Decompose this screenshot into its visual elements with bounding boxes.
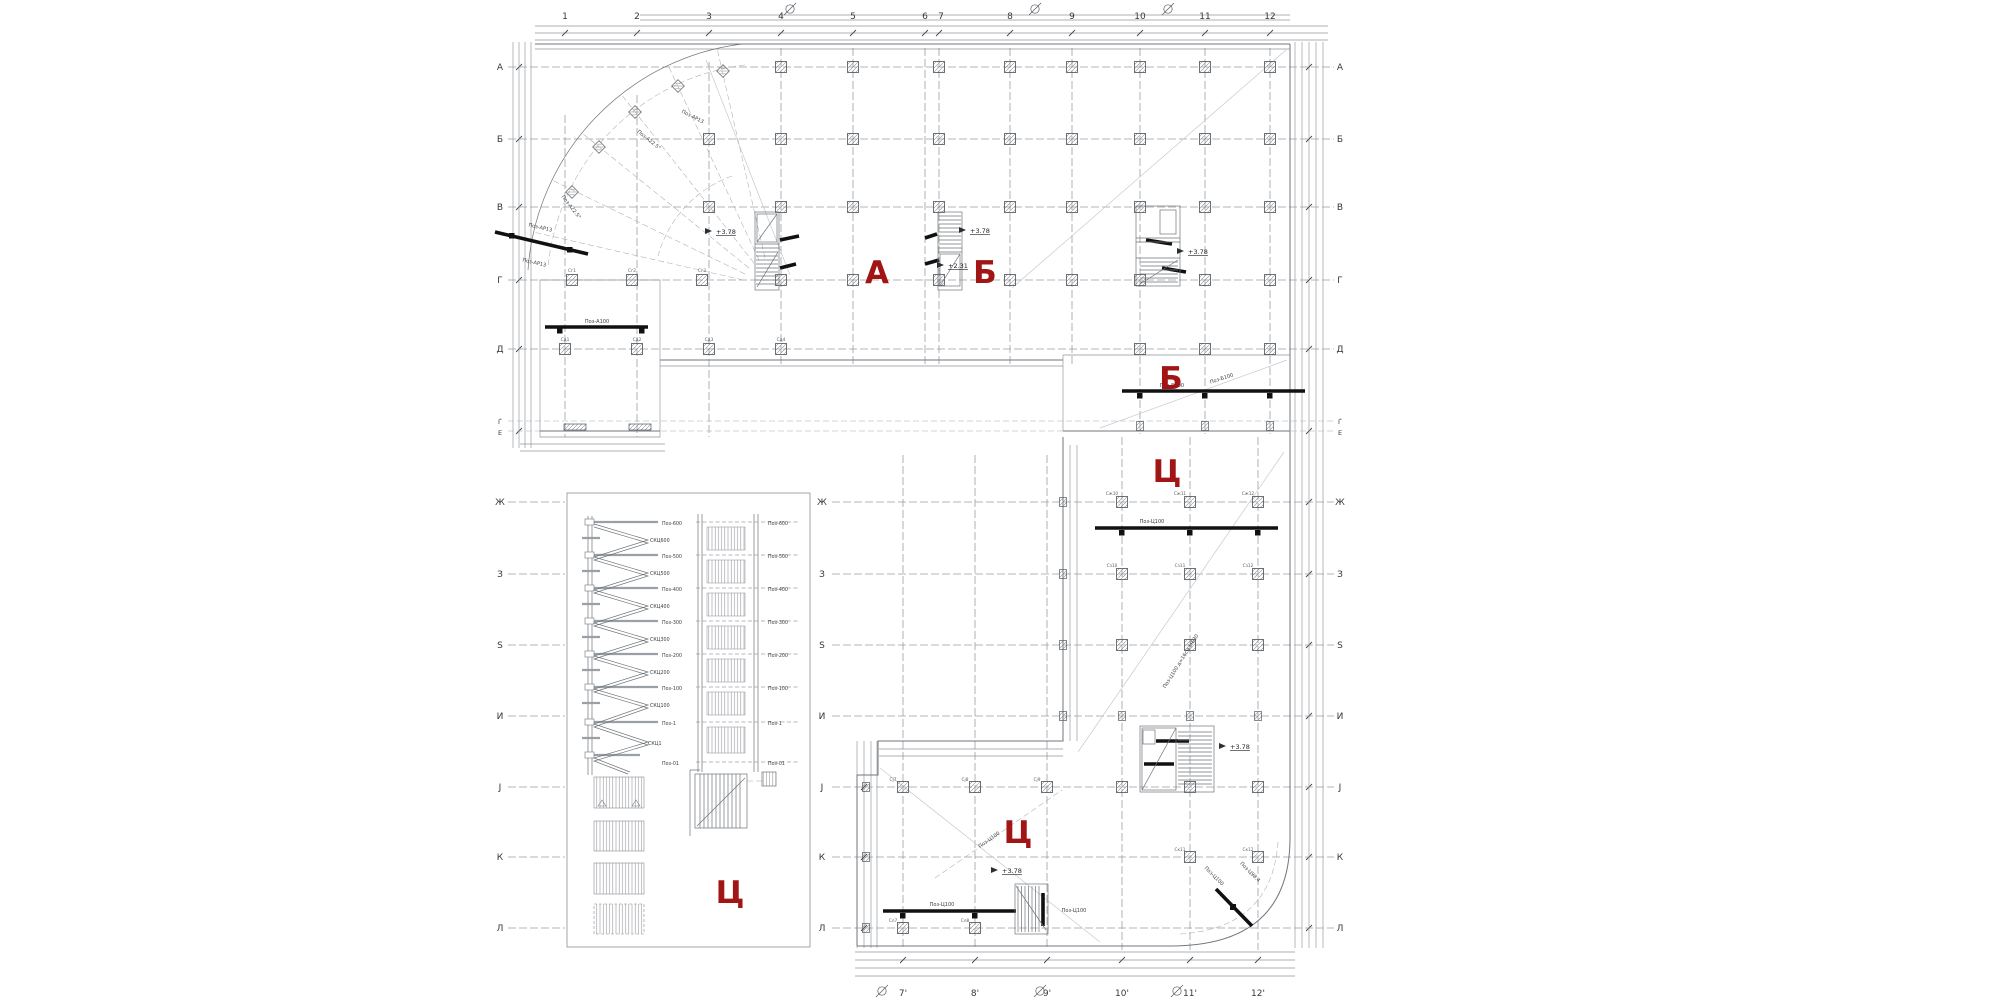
- axis-col-label: 1: [562, 12, 568, 22]
- flight-label: Поз-400: [768, 587, 788, 593]
- section-letter-c1: Ц: [1153, 454, 1182, 490]
- column-tag: Сј7: [890, 777, 897, 783]
- axis-col-label: 10: [1134, 12, 1146, 22]
- axis-row-label: И: [1337, 712, 1344, 722]
- flight-label: Поз-1: [768, 721, 782, 727]
- axis-row-label: И: [819, 712, 826, 722]
- axis-row-label: Д: [1336, 345, 1343, 355]
- column-tag: Ск12: [1242, 847, 1253, 853]
- column-tag: Сз12: [1243, 563, 1254, 569]
- elevation-label: +3.78: [970, 227, 990, 235]
- beam-label: Поз-Ц100: [978, 831, 1002, 850]
- landing-label: СКЦ200: [650, 670, 670, 676]
- flight-label: Поз-600: [662, 521, 682, 527]
- column-tag: Сд2: [633, 337, 642, 343]
- flight-label: Поз-300: [768, 620, 788, 626]
- beam-label: Поз-А22.5°: [560, 194, 582, 220]
- axis-row-label: Ѕ: [497, 641, 503, 651]
- column-tag: Сз11: [1175, 563, 1186, 569]
- axis-row-label: К: [819, 853, 826, 863]
- column-tag: Ск11: [1174, 847, 1185, 853]
- axis-col-label: 8': [971, 989, 979, 999]
- elevation-label: +3.78: [716, 228, 736, 236]
- section-letter-b: Б: [973, 255, 997, 291]
- axis-col-label: 9: [1069, 12, 1075, 22]
- elevation-label: +3.78: [1002, 867, 1022, 875]
- axis-row-label: И: [497, 712, 504, 722]
- axis-col-label: 3: [706, 12, 712, 22]
- axis-row-label: Г: [1337, 276, 1343, 286]
- axis-row-label: К: [1337, 853, 1344, 863]
- axis-row-label: В: [497, 203, 503, 213]
- flight-label: Поз-600: [768, 521, 788, 527]
- axis-row-label: Б: [497, 135, 503, 145]
- column-tag: Сд1: [561, 337, 570, 343]
- column-tag: Сд4: [777, 337, 786, 343]
- column-tag: Сж11: [1174, 491, 1187, 497]
- axis-row-label: Ж: [1335, 498, 1345, 508]
- landing-label: СКЦ100: [650, 703, 670, 709]
- axis-row-label: А: [497, 63, 504, 73]
- beam-label: Поз-АР13: [522, 257, 547, 268]
- axis-row-label: Ѓ: [498, 417, 502, 426]
- landing-label: СКЦ600: [650, 538, 670, 544]
- stair-core-5: [1140, 726, 1214, 792]
- axis-row-label: Е: [1338, 429, 1342, 437]
- axis-row-label: Е: [498, 429, 502, 437]
- column-tag: Сл7: [889, 918, 898, 924]
- flight-label: Поз-01: [662, 761, 679, 767]
- column-tag: Сг3: [698, 268, 706, 274]
- column-tag: Сг1: [568, 268, 576, 274]
- axis-col-label: 10': [1115, 989, 1129, 999]
- section-letter-c3: Ц: [716, 875, 745, 911]
- axis-row-label: Г: [497, 276, 503, 286]
- flight-label: Поз-500: [662, 554, 682, 560]
- floor-plan-drawing: 1 2 3 4 5 6 7 8 9 10 11 12 7' 8' 9' 10' …: [0, 0, 2000, 1000]
- axis-col-label: 11': [1183, 989, 1197, 999]
- section-letter-c2: Ц: [1004, 815, 1033, 851]
- beam-label: Поз-А100: [585, 319, 609, 325]
- axis-row-label: Ј: [1338, 783, 1342, 793]
- flight-label: Поз-200: [768, 653, 788, 659]
- axis-col-label: 8: [1007, 12, 1013, 22]
- axis-row-label: Ј: [820, 783, 824, 793]
- axis-row-label: К: [497, 853, 504, 863]
- axis-col-label: 2: [634, 12, 640, 22]
- column-tag: Сз10: [1107, 563, 1118, 569]
- elevation-label: +3.78: [1188, 248, 1208, 256]
- landing-label: СКЦ300: [650, 637, 670, 643]
- beam-label: Поз-Ц100: [1140, 519, 1165, 525]
- axis-col-label: 7: [938, 12, 944, 22]
- beam-label: Поз-Ц100: [1062, 908, 1087, 914]
- column-tag: Сј8: [962, 777, 969, 783]
- beam-label: Поз-АР13: [528, 222, 553, 233]
- landing-label: СКЦ500: [650, 571, 670, 577]
- flight-label: Поз-200: [662, 653, 682, 659]
- column-tag: Сј9: [1034, 777, 1041, 783]
- axis-row-label: Ѕ: [1337, 641, 1343, 651]
- axis-col-label: 11: [1199, 12, 1210, 22]
- axis-row-label: Д: [496, 345, 503, 355]
- flight-label: Поз-100: [662, 686, 682, 692]
- column-tag: Сл8: [961, 918, 970, 924]
- axis-col-label: 12': [1251, 989, 1265, 999]
- landing-label: СКЦ400: [650, 604, 670, 610]
- axis-row-label: З: [497, 570, 503, 580]
- column-tag: Сж12: [1242, 491, 1255, 497]
- axis-row-label: Ѓ: [1338, 417, 1342, 426]
- section-letter-a: А: [865, 255, 889, 291]
- axis-col-label: 4: [778, 12, 784, 22]
- beam-label: Поз-Ц100: [1203, 865, 1225, 887]
- elevation-label: +3.78: [1230, 743, 1250, 751]
- slab-note-label: Поз-Ц100 д=16см МБ30: [1162, 633, 1200, 689]
- axis-row-label: Ј: [498, 783, 502, 793]
- landing-label: СКЦ1: [648, 741, 662, 747]
- axis-row-label: Ж: [495, 498, 505, 508]
- flight-label: Поз-01: [768, 761, 785, 767]
- stair-detail-block: [567, 493, 810, 947]
- elevation-label: +2.31: [948, 262, 968, 270]
- drawing-page: 1 2 3 4 5 6 7 8 9 10 11 12 7' 8' 9' 10' …: [0, 0, 2000, 1000]
- axis-col-label: 7': [899, 989, 907, 999]
- flight-label: Поз-1: [662, 721, 676, 727]
- beam-label: Поз-А22.5°: [636, 129, 662, 152]
- axis-row-label: З: [1337, 570, 1343, 580]
- flight-label: Поз-300: [662, 620, 682, 626]
- stair-core-3: [1136, 206, 1180, 286]
- axis-row-label: З: [819, 570, 825, 580]
- axis-row-label: А: [1337, 63, 1344, 73]
- axis-row-label: Ѕ: [819, 641, 825, 651]
- axis-col-label: 6: [922, 12, 928, 22]
- axis-row-label: Ж: [817, 498, 827, 508]
- axis-col-label: 12: [1264, 12, 1275, 22]
- fan-structure: [528, 44, 765, 280]
- flight-label: Поз-100: [768, 686, 788, 692]
- section-letter-b2: Б: [1159, 361, 1183, 397]
- axis-col-label: 5: [850, 12, 856, 22]
- axis-row-label: Л: [497, 924, 504, 934]
- axis-row-label: Л: [819, 924, 826, 934]
- axis-row-label: Б: [1337, 135, 1343, 145]
- column-tag: Сд3: [705, 337, 714, 343]
- beam-label: Поз-Ц100: [930, 902, 955, 908]
- axis-row-label: Л: [1337, 924, 1344, 934]
- column-tag: Сж10: [1106, 491, 1119, 497]
- axis-row-label: В: [1337, 203, 1343, 213]
- flight-label: Поз-500: [768, 554, 788, 560]
- flight-label: Поз-400: [662, 587, 682, 593]
- column-tag: Сг2: [628, 268, 636, 274]
- beam-label: Поз-АР13: [680, 109, 704, 125]
